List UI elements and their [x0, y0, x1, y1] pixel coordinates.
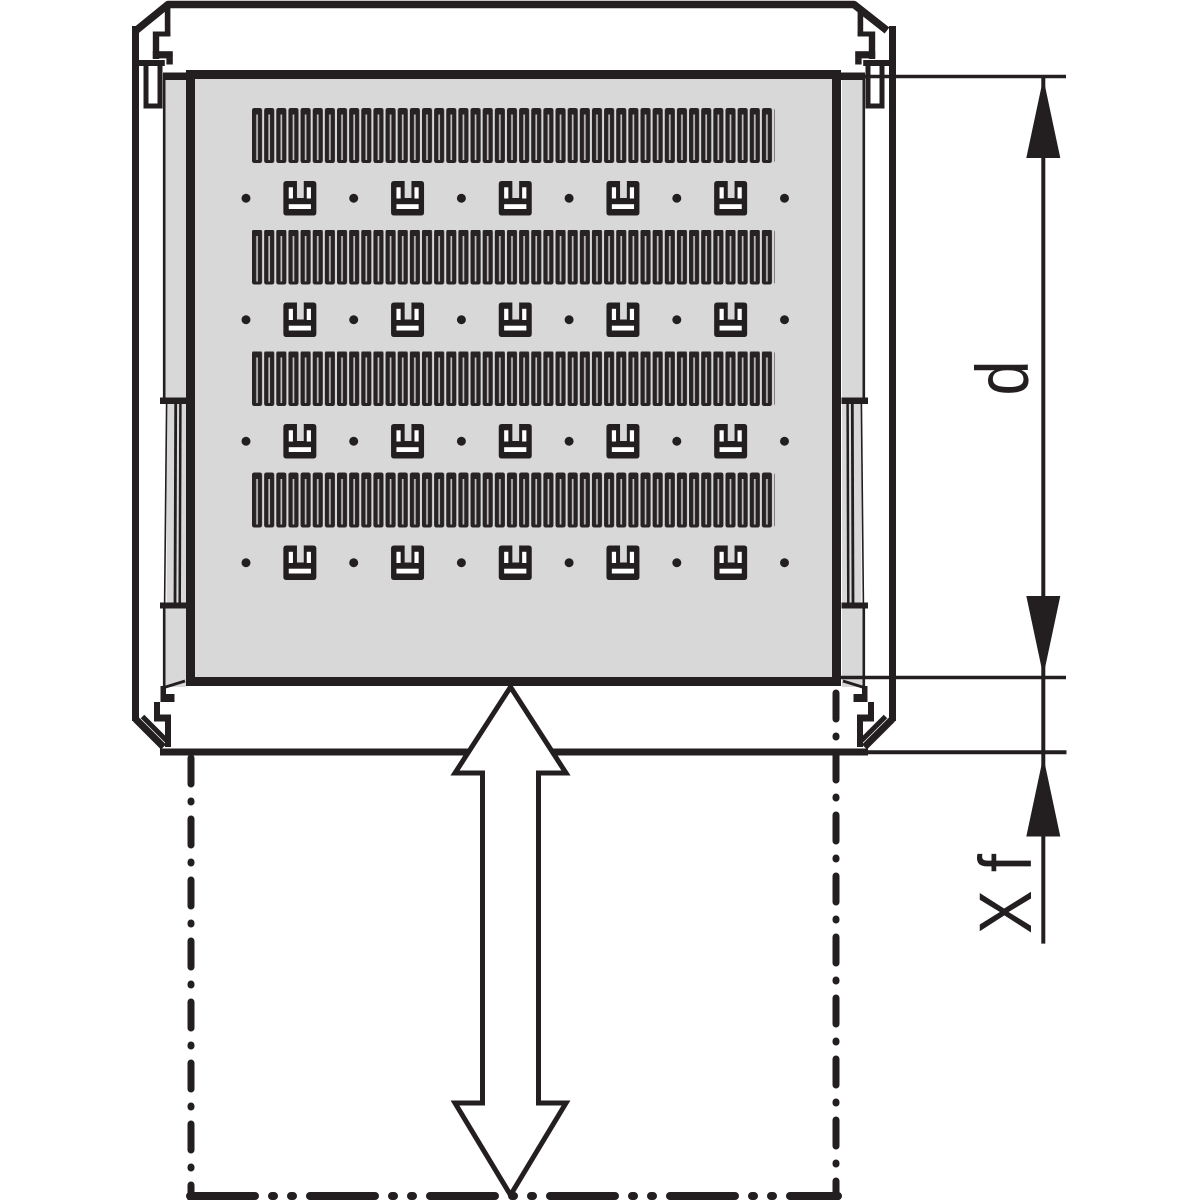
svg-text:X f: X f [964, 854, 1047, 934]
svg-text:d: d [961, 361, 1044, 396]
